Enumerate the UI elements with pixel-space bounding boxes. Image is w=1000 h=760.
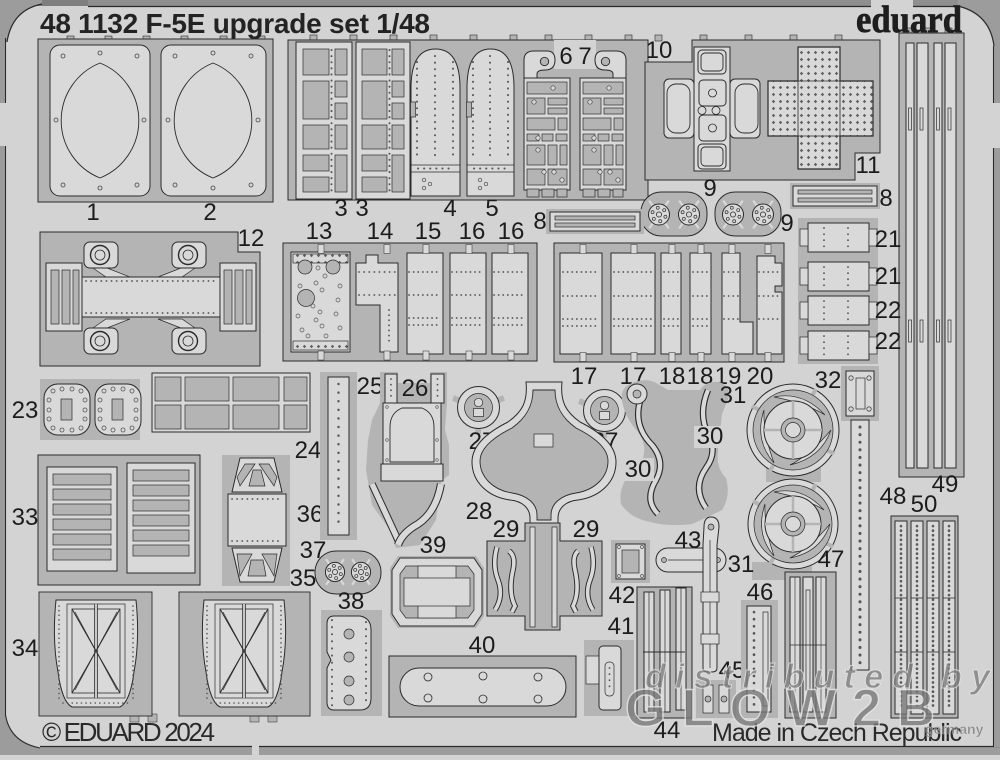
svg-text:48: 48 [880, 483, 907, 510]
svg-text:24: 24 [295, 437, 322, 464]
svg-text:8: 8 [879, 185, 892, 212]
svg-text:26: 26 [402, 375, 429, 402]
svg-text:9: 9 [703, 175, 716, 202]
svg-text:33: 33 [12, 504, 39, 531]
svg-text:21: 21 [875, 263, 902, 290]
svg-text:12: 12 [238, 225, 265, 252]
svg-text:41: 41 [608, 613, 635, 640]
svg-text:34: 34 [12, 635, 39, 662]
svg-text:4: 4 [443, 195, 456, 222]
svg-text:10: 10 [646, 37, 673, 64]
svg-text:14: 14 [367, 218, 394, 245]
svg-text:47: 47 [818, 546, 845, 573]
svg-text:20: 20 [747, 363, 774, 390]
svg-text:© EDUARD 2024: © EDUARD 2024 [42, 717, 215, 747]
svg-text:48 1132 F-5E upgrade set 1/: 48 1132 F-5E upgrade set 1/48 [40, 8, 430, 39]
svg-text:11: 11 [856, 152, 881, 179]
svg-text:32: 32 [815, 367, 842, 394]
svg-text:30: 30 [625, 456, 652, 483]
svg-text:17: 17 [571, 363, 598, 390]
svg-text:3: 3 [334, 195, 347, 222]
svg-text:16: 16 [459, 218, 486, 245]
svg-text:31: 31 [720, 382, 747, 409]
svg-text:16: 16 [498, 218, 525, 245]
svg-text:50: 50 [911, 491, 938, 518]
svg-text:31: 31 [728, 551, 755, 578]
svg-text:22: 22 [875, 328, 902, 355]
svg-text:37: 37 [300, 537, 327, 564]
svg-text:38: 38 [338, 588, 365, 615]
svg-text:6: 6 [559, 43, 572, 70]
svg-text:29: 29 [493, 516, 520, 543]
svg-text:35: 35 [290, 565, 317, 592]
svg-text:43: 43 [675, 527, 702, 554]
svg-text:1: 1 [86, 199, 99, 226]
svg-text:25: 25 [357, 373, 384, 400]
svg-text:8: 8 [533, 208, 546, 235]
svg-text:42: 42 [609, 582, 636, 609]
svg-text:2: 2 [203, 199, 216, 226]
svg-text:germany: germany [925, 721, 984, 737]
svg-text:28: 28 [466, 498, 493, 525]
svg-text:21: 21 [875, 226, 902, 253]
svg-text:9: 9 [780, 210, 793, 237]
svg-text:23: 23 [12, 397, 39, 424]
svg-text:22: 22 [875, 297, 902, 324]
svg-text:46: 46 [747, 579, 774, 606]
svg-text:7: 7 [578, 43, 591, 70]
svg-text:40: 40 [469, 632, 496, 659]
svg-text:15: 15 [415, 218, 442, 245]
svg-text:13: 13 [306, 218, 333, 245]
svg-text:39: 39 [420, 532, 447, 559]
svg-text:30: 30 [697, 423, 724, 450]
svg-text:29: 29 [573, 516, 600, 543]
svg-text:36: 36 [297, 501, 324, 528]
svg-text:18: 18 [659, 363, 686, 390]
